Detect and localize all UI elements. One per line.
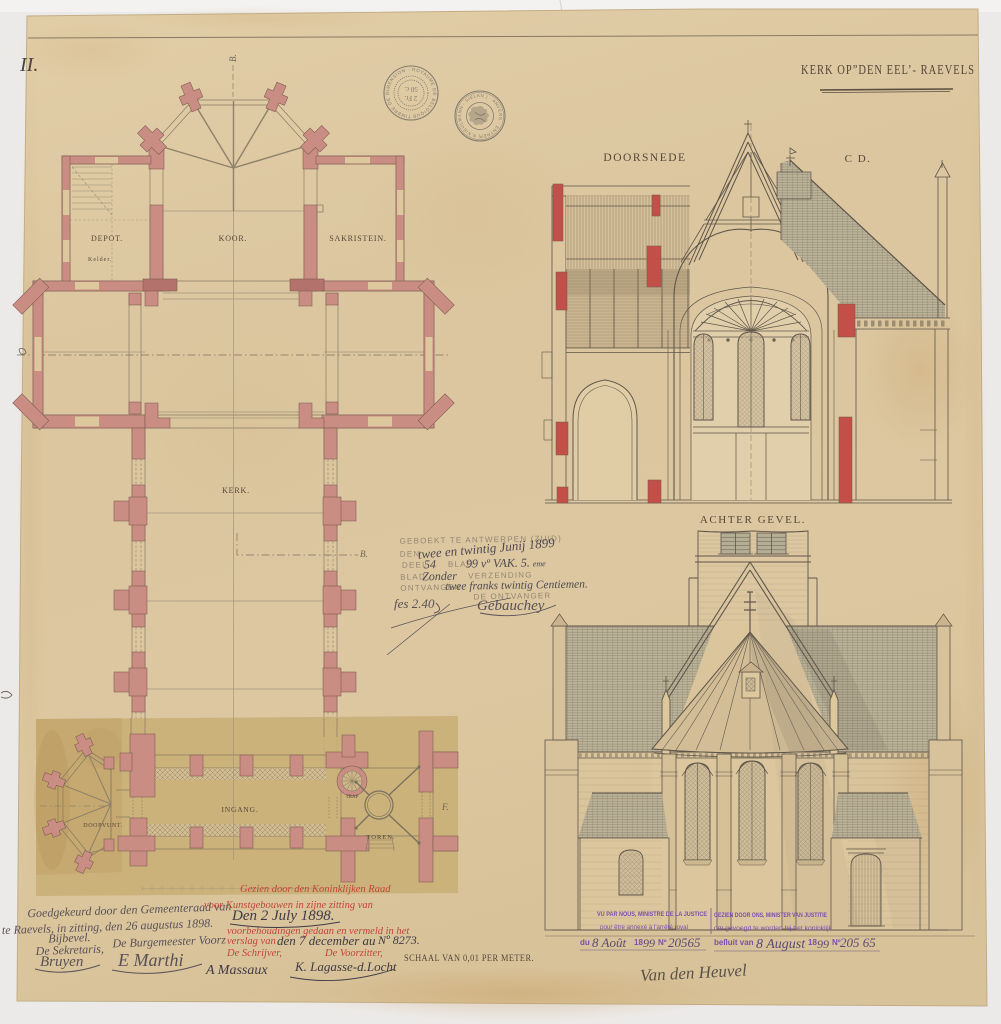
svg-text:Gezien door den Koninklijken R: Gezien door den Koninklijken Raad (240, 884, 391, 895)
svg-text:VU PAR NOUS, MINISTRE DE LA JU: VU PAR NOUS, MINISTRE DE LA JUSTICE (597, 911, 707, 918)
svg-text:Nº: Nº (658, 938, 667, 947)
svg-text:pour être annexé à l'arrêté ro: pour être annexé à l'arrêté royal (600, 924, 688, 931)
svg-text:fes 2.40: fes 2.40 (394, 596, 435, 611)
svg-text:8 August: 8 August (756, 937, 806, 952)
svg-text:KERK OP”DEN EEL’- RAEVELS: KERK OP”DEN EEL’- RAEVELS (801, 62, 975, 77)
svg-text:den 7 december au: den 7 december au (277, 933, 376, 948)
svg-text:De Schrijver,: De Schrijver, (226, 948, 282, 959)
svg-text:E Marthi: E Marthi (117, 950, 184, 970)
svg-text:KOOR.: KOOR. (219, 234, 248, 243)
svg-text:20565: 20565 (668, 935, 701, 950)
svg-text:K. Lagasse-d.Locht: K. Lagasse-d.Locht (294, 959, 397, 974)
svg-text:twee franks twintig Centiemen.: twee franks twintig Centiemen. (445, 578, 588, 592)
svg-text:om gevoegd te worden bij het k: om gevoegd te worden bij het koninklijk (714, 925, 833, 932)
svg-text:99: 99 (643, 936, 655, 950)
svg-text:F.: F. (441, 802, 449, 812)
svg-text:SAKRISTEIN.: SAKRISTEIN. (329, 234, 386, 243)
svg-text:Kelder.: Kelder. (88, 257, 113, 263)
svg-text:8 Août: 8 Août (592, 935, 626, 950)
svg-text:De Voorzitter,: De Voorzitter, (324, 948, 383, 959)
svg-text:II.: II. (19, 54, 38, 76)
svg-text:SCHAAL VAN 0,01 PER METER.: SCHAAL VAN 0,01 PER METER. (404, 954, 534, 964)
svg-text:Nº 8273.: Nº 8273. (377, 933, 420, 947)
svg-text:2 Fr.: 2 Fr. (404, 94, 417, 102)
svg-text:DOORSNEDE: DOORSNEDE (603, 152, 686, 164)
svg-text:50 c.: 50 c. (404, 85, 418, 93)
svg-text:C D.: C D. (845, 153, 872, 165)
svg-text:DOOPVUNT.: DOOPVUNT. (83, 823, 122, 829)
svg-text:99: 99 (817, 937, 829, 951)
svg-text:TRAP: TRAP (346, 795, 359, 800)
svg-text:GEZIEN DOOR ONS, MINISTER VAN: GEZIEN DOOR ONS, MINISTER VAN JUSTITIE (714, 912, 827, 919)
svg-text:B.: B. (228, 54, 238, 62)
svg-text:B.: B. (360, 549, 368, 559)
svg-text:DEPOT.: DEPOT. (91, 234, 123, 243)
svg-text:TOREN.: TOREN. (366, 834, 395, 841)
svg-text:verslag van: verslag van (227, 936, 276, 947)
svg-text:du: du (580, 938, 590, 947)
svg-text:INGANG.: INGANG. (221, 805, 258, 814)
svg-text:beſluit van: beſluit van (714, 938, 754, 947)
svg-text:KERK.: KERK. (222, 486, 250, 495)
svg-text:Gebauchey: Gebauchey (477, 598, 545, 614)
svg-text:Den 2 July 1898.: Den 2 July 1898. (231, 908, 334, 924)
svg-text:ACHTER GEVEL.: ACHTER GEVEL. (700, 514, 806, 526)
svg-text:Bruyen: Bruyen (40, 954, 83, 970)
svg-text:A Massaux: A Massaux (205, 963, 268, 978)
svg-text:205 65: 205 65 (840, 935, 876, 950)
